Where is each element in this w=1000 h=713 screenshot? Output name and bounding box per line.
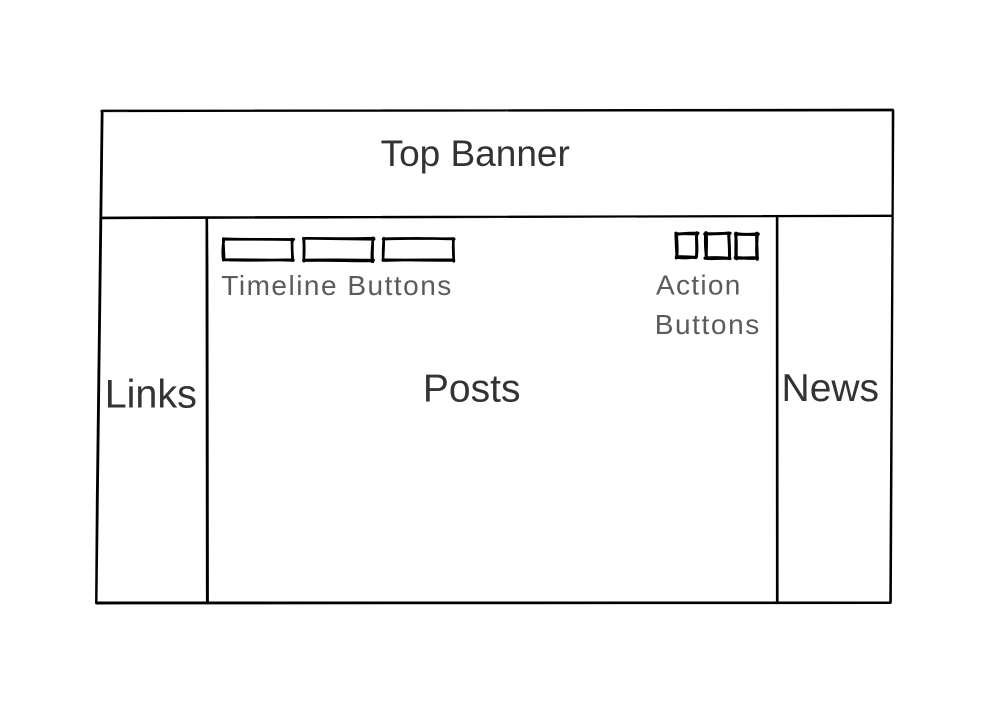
svg-text:Posts: Posts bbox=[423, 367, 521, 410]
svg-text:Timeline Buttons: Timeline Buttons bbox=[221, 270, 452, 301]
svg-text:Buttons: Buttons bbox=[655, 309, 761, 340]
svg-text:Top Banner: Top Banner bbox=[381, 133, 570, 174]
svg-text:Action: Action bbox=[656, 269, 742, 300]
svg-text:Links: Links bbox=[105, 373, 197, 417]
svg-text:News: News bbox=[782, 367, 880, 410]
